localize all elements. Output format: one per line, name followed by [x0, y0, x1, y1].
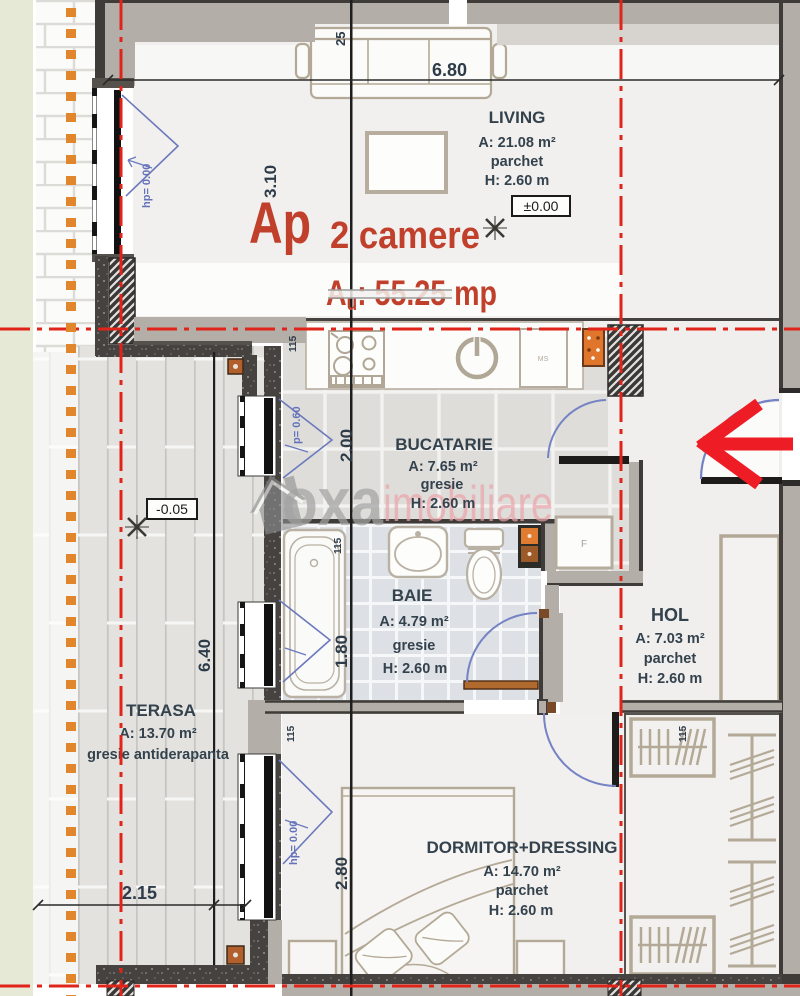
svg-text:parchet: parchet: [644, 651, 697, 667]
svg-text:115: 115: [288, 335, 299, 352]
svg-text:6.80: 6.80: [432, 60, 467, 80]
svg-text:HOL: HOL: [651, 605, 689, 625]
svg-text:parchet: parchet: [491, 154, 544, 170]
svg-text:A: 21.08 m²: A: 21.08 m²: [478, 135, 556, 151]
svg-text:±0.00: ±0.00: [524, 198, 559, 214]
svg-text:2.15: 2.15: [122, 883, 157, 903]
svg-text:115: 115: [286, 725, 297, 742]
svg-text:hp= 0.00: hp= 0.00: [141, 164, 153, 208]
svg-text:A: 13.70 m²: A: 13.70 m²: [119, 726, 197, 742]
svg-text:A: 7.03 m²: A: 7.03 m²: [635, 631, 704, 647]
svg-text:2.80: 2.80: [332, 857, 351, 890]
svg-text:A: 7.65 m²: A: 7.65 m²: [408, 459, 477, 475]
svg-text:H: 2.60 m: H: 2.60 m: [383, 661, 447, 677]
svg-text:gresie: gresie: [421, 477, 464, 493]
svg-text:H: 2.60 m: H: 2.60 m: [485, 173, 549, 189]
svg-text:2.00: 2.00: [337, 429, 356, 462]
svg-text:115: 115: [678, 725, 689, 742]
svg-text:gresie antiderapanta: gresie antiderapanta: [87, 747, 230, 763]
svg-text:oxa: oxa: [282, 464, 384, 540]
svg-text:25: 25: [333, 32, 348, 46]
svg-text:Ap: Ap: [249, 191, 311, 256]
svg-text:1.80: 1.80: [332, 635, 351, 668]
svg-text:6.40: 6.40: [195, 639, 214, 672]
svg-text:BUCATARIE: BUCATARIE: [395, 435, 493, 454]
svg-text:H: 2.60 m: H: 2.60 m: [638, 671, 702, 687]
svg-text:A: 4.79 m²: A: 4.79 m²: [379, 614, 448, 630]
svg-text:parchet: parchet: [496, 883, 549, 899]
svg-text:BAIE: BAIE: [392, 586, 433, 605]
svg-text:hp= 0.00: hp= 0.00: [288, 821, 300, 865]
svg-text:gresie: gresie: [393, 638, 436, 654]
svg-text:2 camere: 2 camere: [330, 215, 480, 257]
svg-text:LIVING: LIVING: [489, 108, 546, 127]
svg-text:DORMITOR+DRESSING: DORMITOR+DRESSING: [427, 838, 618, 857]
svg-text:H: 2.60 m: H: 2.60 m: [489, 903, 553, 919]
svg-text:F: F: [581, 539, 587, 550]
svg-text:MS: MS: [538, 356, 549, 363]
svg-text:A: 14.70 m²: A: 14.70 m²: [483, 864, 561, 880]
svg-text:TERASA: TERASA: [126, 701, 196, 720]
svg-text:H: 2.60 m: H: 2.60 m: [411, 496, 475, 512]
svg-text:-0.05: -0.05: [156, 501, 188, 517]
svg-text:p= 0.60: p= 0.60: [291, 406, 303, 444]
